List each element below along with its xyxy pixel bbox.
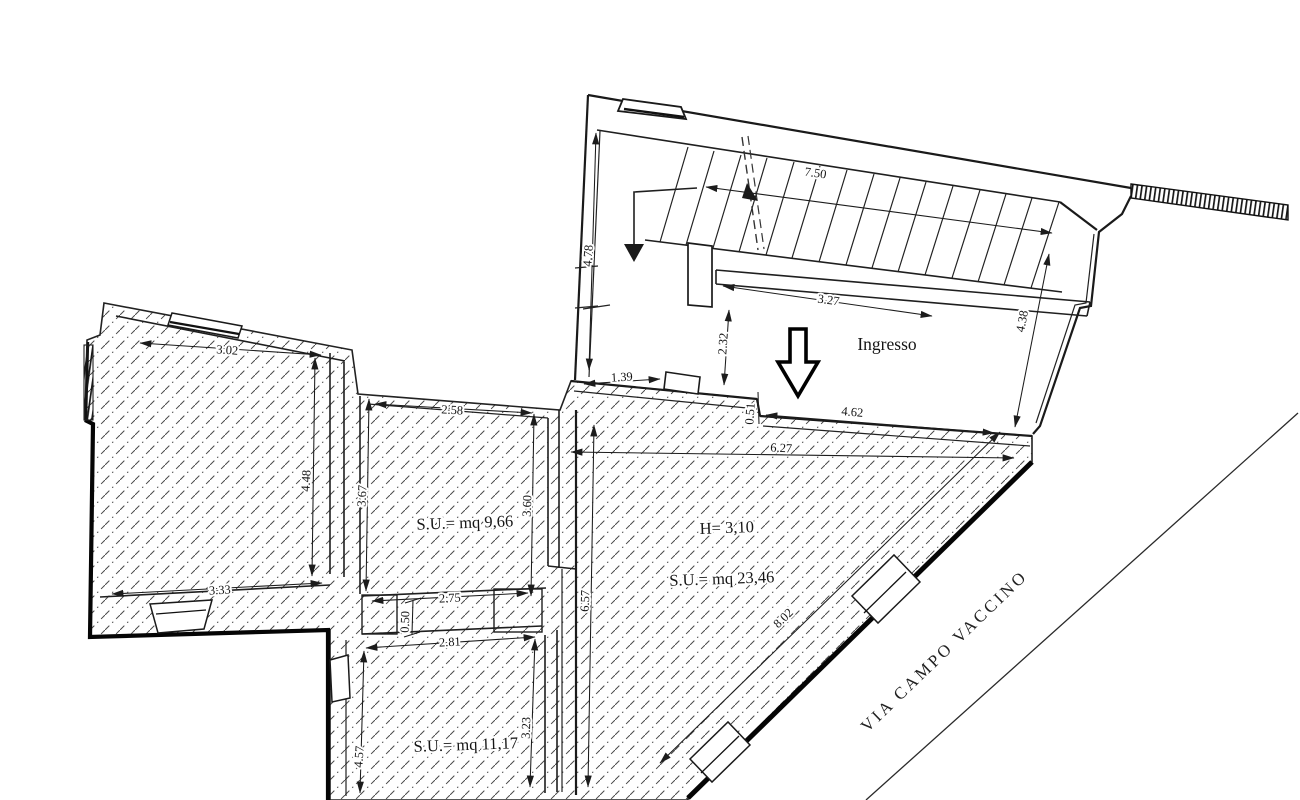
left-wall-outer xyxy=(575,95,588,380)
entrance-arrow-icon xyxy=(778,329,818,396)
stair-down-path xyxy=(634,188,697,246)
dim-bottom-room-right: 3.23 xyxy=(519,717,534,739)
dim-stairwell-left: 4.78 xyxy=(580,244,595,267)
dim-left-room-right: 4.48 xyxy=(298,470,313,493)
dim-left-room-top: 3.02 xyxy=(216,342,239,357)
room-b-area-label: S.U.= mq 23,46 xyxy=(669,567,775,590)
dim-landing: 3.27 xyxy=(817,292,841,309)
stair-pillar xyxy=(688,243,712,307)
floor-plan-svg: VIA CAMPO VACCINO 7.50 4.78 3.27 2.32 4.… xyxy=(0,0,1300,800)
room-b-height-label: H= 3,10 xyxy=(699,517,754,538)
dim-left-room-bottom: 3.33 xyxy=(209,582,232,597)
corner-diagonal-wall xyxy=(1060,202,1097,230)
dim-bottom-room-top: 2.81 xyxy=(439,634,462,649)
staircase xyxy=(624,136,1090,316)
dim-hall-right: 4.38 xyxy=(1013,309,1031,333)
dim-hall-door: 1.39 xyxy=(611,369,634,384)
left-window-band xyxy=(84,345,93,420)
room-c-area-label: S.U.= mq 11,17 xyxy=(413,733,518,756)
dim-main-top: 6.27 xyxy=(770,440,793,455)
dim-line-hall-right xyxy=(1015,254,1049,427)
apartment-hatched-area xyxy=(84,303,1032,800)
party-wall-strip xyxy=(1131,184,1288,220)
top-wall-inner xyxy=(597,130,1060,202)
bottom-room-left-window xyxy=(330,655,350,702)
dim-hall-left: 2.32 xyxy=(715,332,730,355)
dim-entry-step: 0.51 xyxy=(742,402,757,425)
dim-mid-room-right: 3.60 xyxy=(520,495,535,517)
stair-down-arrowhead xyxy=(624,244,644,262)
dim-mid-room-bottom: 2.75 xyxy=(439,590,462,605)
floor-plan-scan: VIA CAMPO VACCINO 7.50 4.78 3.27 2.32 4.… xyxy=(0,0,1300,800)
dim-mid-room-left: 3.67 xyxy=(354,485,369,508)
dim-mid-room-top: 2.58 xyxy=(441,402,464,417)
dim-jog: 0.50 xyxy=(398,611,413,633)
left-room-bottom-window xyxy=(150,600,212,633)
right-wall-inner xyxy=(1036,234,1094,423)
entrance-hall-label: Ingresso xyxy=(857,334,917,354)
dim-main-left: 6.57 xyxy=(578,590,593,612)
room-a-area-label: S.U.= mq 9,66 xyxy=(416,511,513,533)
dim-bottom-room-left: 4.57 xyxy=(351,745,366,768)
dim-entry-front: 4.62 xyxy=(841,404,864,420)
dim-stairs-run: 7.50 xyxy=(804,165,828,182)
